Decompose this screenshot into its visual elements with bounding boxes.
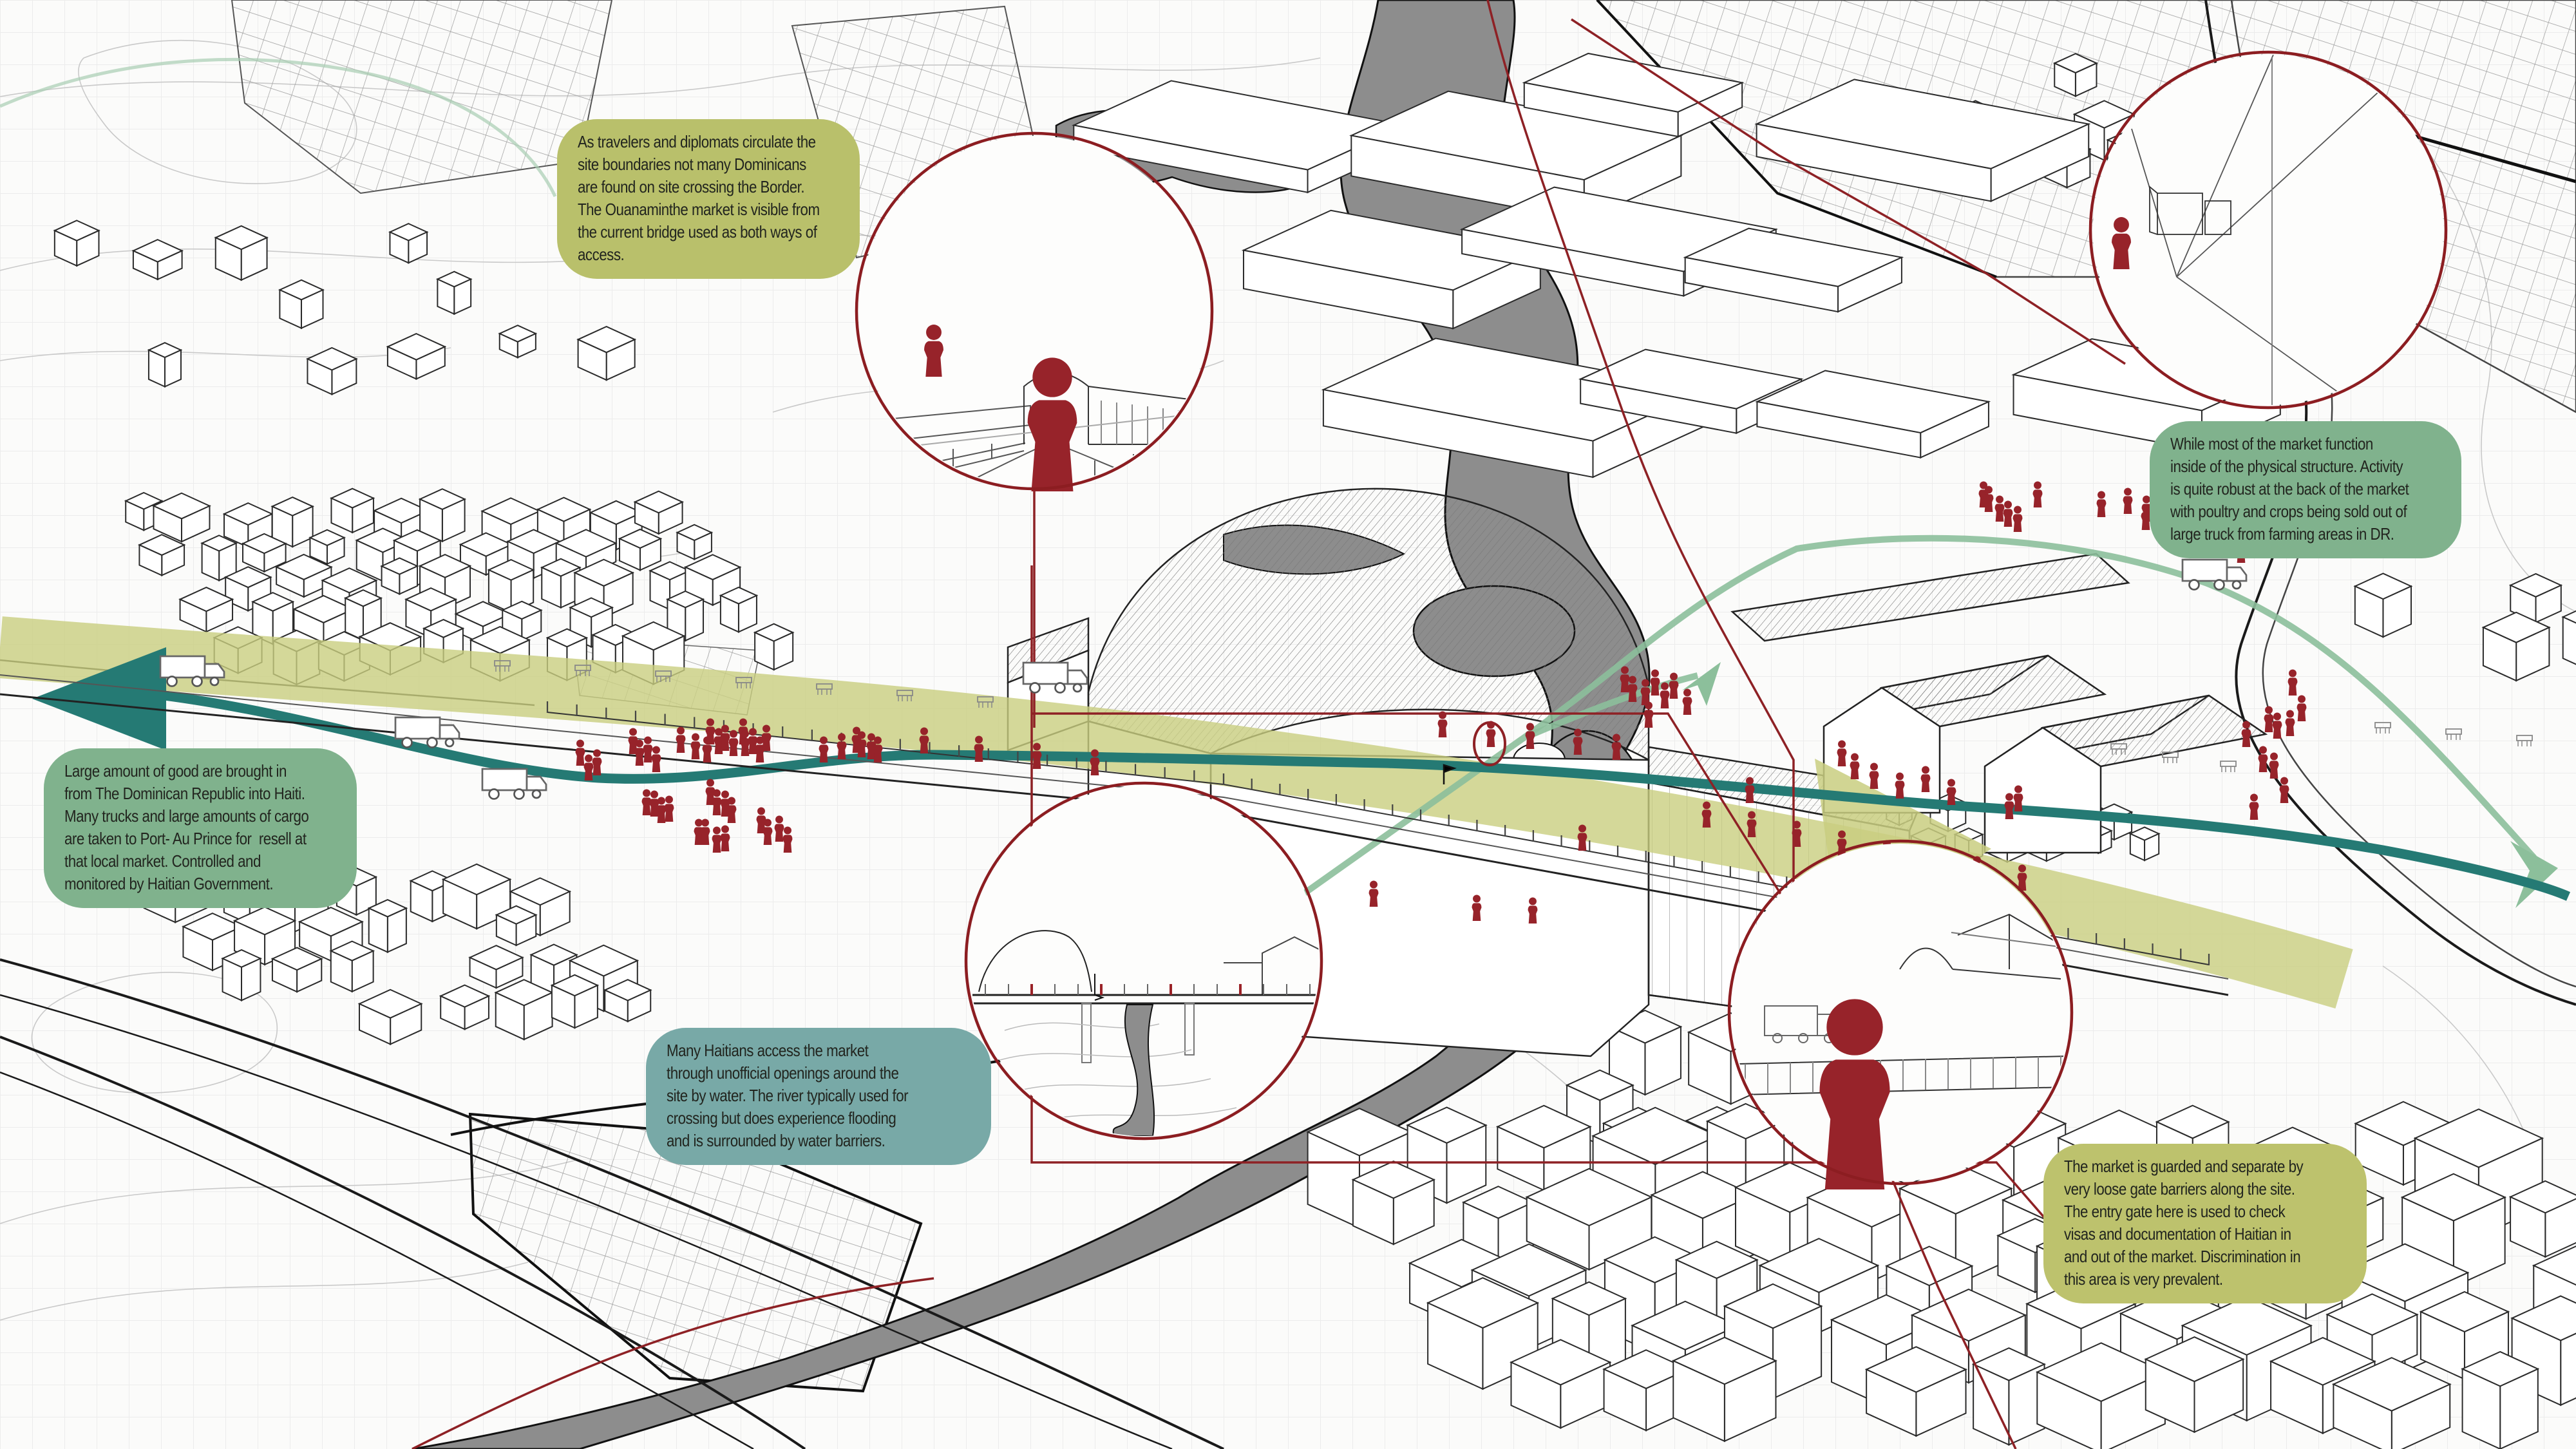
figure-group-east_road — [2242, 670, 2307, 820]
person-figure — [2297, 696, 2307, 721]
truck-icon — [2183, 560, 2246, 590]
person-figure — [1578, 825, 1587, 851]
person-figure — [1683, 689, 1692, 715]
person-figure — [706, 719, 715, 744]
person-figure — [974, 736, 984, 762]
person-figure — [1526, 723, 1535, 749]
person-figure — [691, 734, 701, 759]
person-figure — [1472, 895, 1482, 921]
person-figure — [1090, 750, 1100, 775]
person-figure — [712, 790, 722, 815]
annotation-text: Large amount of good are brought in from… — [64, 760, 339, 895]
person-figure — [1641, 679, 1651, 705]
person-figure — [1644, 702, 1654, 728]
person-figure — [2097, 491, 2107, 517]
person-figure — [1870, 763, 1879, 789]
person-figure — [1702, 802, 1712, 828]
person-figure — [1438, 712, 1448, 737]
person-figure — [857, 732, 867, 757]
sage-arrowhead — [2510, 841, 2558, 908]
person-figure — [775, 816, 784, 842]
person-figure — [712, 827, 722, 853]
person-figure — [1995, 496, 2005, 522]
person-figure — [1947, 779, 1956, 805]
person-figure — [1573, 729, 1583, 755]
person-figure — [1984, 486, 1994, 512]
person-figure — [727, 797, 737, 823]
person-figure — [1651, 670, 1660, 696]
person-figure — [729, 730, 739, 756]
person-figure — [635, 740, 645, 766]
annotation-goods-import: Large amount of good are brought in from… — [44, 748, 357, 908]
person-figure — [741, 730, 750, 756]
person-figure — [1837, 741, 1847, 766]
person-figure — [2288, 670, 2298, 696]
annotation-entry-gate: The market is guarded and separate by ve… — [2043, 1144, 2367, 1303]
person-figure — [1028, 357, 1077, 491]
person-figure — [2112, 217, 2131, 269]
person-figure — [837, 734, 847, 759]
person-figure — [1921, 766, 1931, 792]
truck-icon — [395, 717, 459, 748]
annotation-text: Many Haitians access the market through … — [667, 1039, 974, 1152]
person-figure — [2123, 488, 2133, 514]
annotation-text: The market is guarded and separate by ve… — [2064, 1155, 2349, 1291]
person-figure — [701, 819, 710, 845]
person-figure — [1612, 734, 1622, 760]
stall-icon — [2375, 723, 2391, 734]
person-figure — [592, 750, 602, 775]
cluster-right-mid-blocks — [2355, 573, 2576, 681]
figure-group-yard_west — [642, 779, 793, 853]
cluster-left-scatter — [55, 220, 635, 394]
person-figure — [2273, 713, 2282, 739]
person-figure — [2005, 793, 2014, 819]
person-figure — [2264, 706, 2274, 732]
site-analysis-diagram: As travelers and diplomats circulate the… — [0, 0, 2576, 1449]
stall-icon — [2517, 735, 2532, 746]
person-figure — [1528, 898, 1538, 923]
annotation-market-back: While most of the market function inside… — [2150, 421, 2461, 558]
person-figure — [1819, 999, 1889, 1189]
person-figure — [1032, 743, 1042, 769]
person-figure — [1369, 881, 1379, 907]
annotation-text: As travelers and diplomats circulate the… — [578, 131, 842, 266]
person-figure — [819, 737, 829, 762]
person-figure — [1669, 673, 1679, 699]
person-figure — [762, 725, 772, 751]
person-figure — [657, 797, 667, 823]
person-figure — [2269, 753, 2279, 779]
person-figure — [2242, 721, 2251, 747]
person-figure — [665, 796, 674, 822]
annotation-text: While most of the market function inside… — [2170, 433, 2444, 545]
person-figure — [650, 791, 659, 817]
person-figure — [652, 746, 661, 772]
person-figure — [721, 725, 730, 751]
annotation-border-crossing: As travelers and diplomats circulate the… — [557, 119, 860, 279]
person-figure — [783, 827, 793, 853]
person-figure — [643, 737, 653, 762]
person-figure — [1792, 821, 1802, 847]
person-figure — [2259, 746, 2268, 772]
person-figure — [1850, 753, 1860, 779]
person-figure — [873, 737, 883, 762]
person-figure — [2280, 777, 2289, 803]
person-figure — [576, 740, 585, 766]
person-figure — [763, 819, 773, 845]
person-figure — [1745, 777, 1755, 803]
person-figure — [1486, 721, 1496, 747]
person-figure — [2033, 482, 2043, 507]
person-figure — [1895, 773, 1905, 799]
person-figure — [1660, 683, 1670, 708]
person-figure — [924, 325, 943, 377]
person-figure — [2003, 501, 2013, 527]
person-figure — [2249, 794, 2259, 820]
person-figure — [721, 826, 730, 851]
stall-icon — [2446, 729, 2461, 740]
vignette-market-fence-view — [1732, 844, 2069, 1181]
person-figure — [1628, 676, 1638, 702]
person-figure — [2014, 786, 2023, 811]
person-figure — [920, 728, 929, 753]
person-figure — [584, 755, 594, 781]
person-figure — [1747, 811, 1757, 837]
annotation-river-access: Many Haitians access the market through … — [646, 1028, 991, 1165]
person-figure — [676, 727, 686, 753]
person-figure — [2013, 506, 2023, 532]
person-figure — [2286, 710, 2295, 736]
stall-icon — [2221, 761, 2236, 772]
